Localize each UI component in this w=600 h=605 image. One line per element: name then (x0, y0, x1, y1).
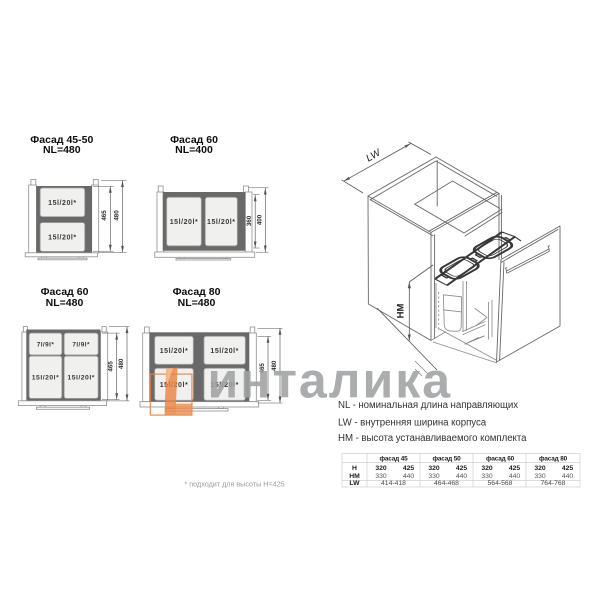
svg-text:HM: HM (349, 473, 360, 480)
svg-text:465: 465 (108, 361, 115, 372)
svg-text:440: 440 (403, 473, 415, 480)
svg-text:320: 320 (428, 465, 440, 472)
svg-text:15l/20l*: 15l/20l* (48, 200, 77, 207)
svg-text:440: 440 (562, 473, 574, 480)
svg-text:764-768: 764-768 (541, 480, 566, 487)
svg-text:H: H (352, 465, 357, 472)
svg-text:LW - внутренняя ширина корпуса: LW - внутренняя ширина корпуса (338, 418, 487, 429)
svg-text:425: 425 (456, 465, 468, 472)
svg-text:15l/20l*: 15l/20l* (207, 219, 236, 226)
svg-text:7l/9l*: 7l/9l* (72, 341, 90, 348)
svg-text:330: 330 (375, 473, 387, 480)
svg-text:440: 440 (456, 473, 468, 480)
svg-text:330: 330 (481, 473, 493, 480)
svg-text:15l/20l*: 15l/20l* (32, 375, 59, 382)
svg-text:фасад 45: фасад 45 (379, 456, 408, 463)
svg-text:400: 400 (256, 214, 263, 225)
svg-text:425: 425 (562, 465, 574, 472)
svg-text:NL - номинальная длина направл: NL - номинальная длина направляющих (338, 400, 518, 411)
svg-text:фасад 80: фасад 80 (539, 456, 568, 463)
svg-text:464-468: 464-468 (434, 480, 459, 487)
svg-text:7l/9l*: 7l/9l* (37, 341, 55, 348)
svg-text:320: 320 (481, 465, 493, 472)
svg-text:564-568: 564-568 (488, 480, 513, 487)
svg-text:425: 425 (509, 465, 521, 472)
svg-text:15l/20l*: 15l/20l* (67, 375, 94, 382)
svg-text:HM: HM (396, 304, 407, 319)
svg-text:330: 330 (428, 473, 440, 480)
svg-text:414-418: 414-418 (381, 480, 406, 487)
svg-text:* подходит для высоты H=425: * подходит для высоты H=425 (185, 480, 285, 489)
svg-text:480: 480 (118, 358, 125, 369)
svg-text:320: 320 (375, 465, 387, 472)
svg-text:NL=400: NL=400 (175, 144, 213, 156)
svg-text:440: 440 (509, 473, 521, 480)
svg-text:фасад 50: фасад 50 (432, 456, 461, 463)
svg-text:320: 320 (534, 465, 546, 472)
svg-text:фасад 60: фасад 60 (486, 456, 515, 463)
svg-text:15l/20l*: 15l/20l* (160, 348, 189, 355)
svg-text:NL=480: NL=480 (46, 297, 84, 309)
svg-text:15l/20l*: 15l/20l* (170, 219, 199, 226)
svg-text:LW: LW (349, 480, 360, 487)
svg-text:NL=480: NL=480 (43, 144, 81, 156)
svg-text:NL=480: NL=480 (178, 297, 216, 309)
svg-text:330: 330 (534, 473, 546, 480)
svg-text:360: 360 (246, 215, 253, 226)
svg-text:425: 425 (403, 465, 415, 472)
svg-text:465: 465 (101, 210, 108, 221)
svg-text:480: 480 (113, 210, 120, 221)
svg-text:15l/20l*: 15l/20l* (48, 235, 77, 242)
svg-text:HM - высота устанавливаемого к: HM - высота устанавливаемого комплекта (338, 433, 527, 444)
